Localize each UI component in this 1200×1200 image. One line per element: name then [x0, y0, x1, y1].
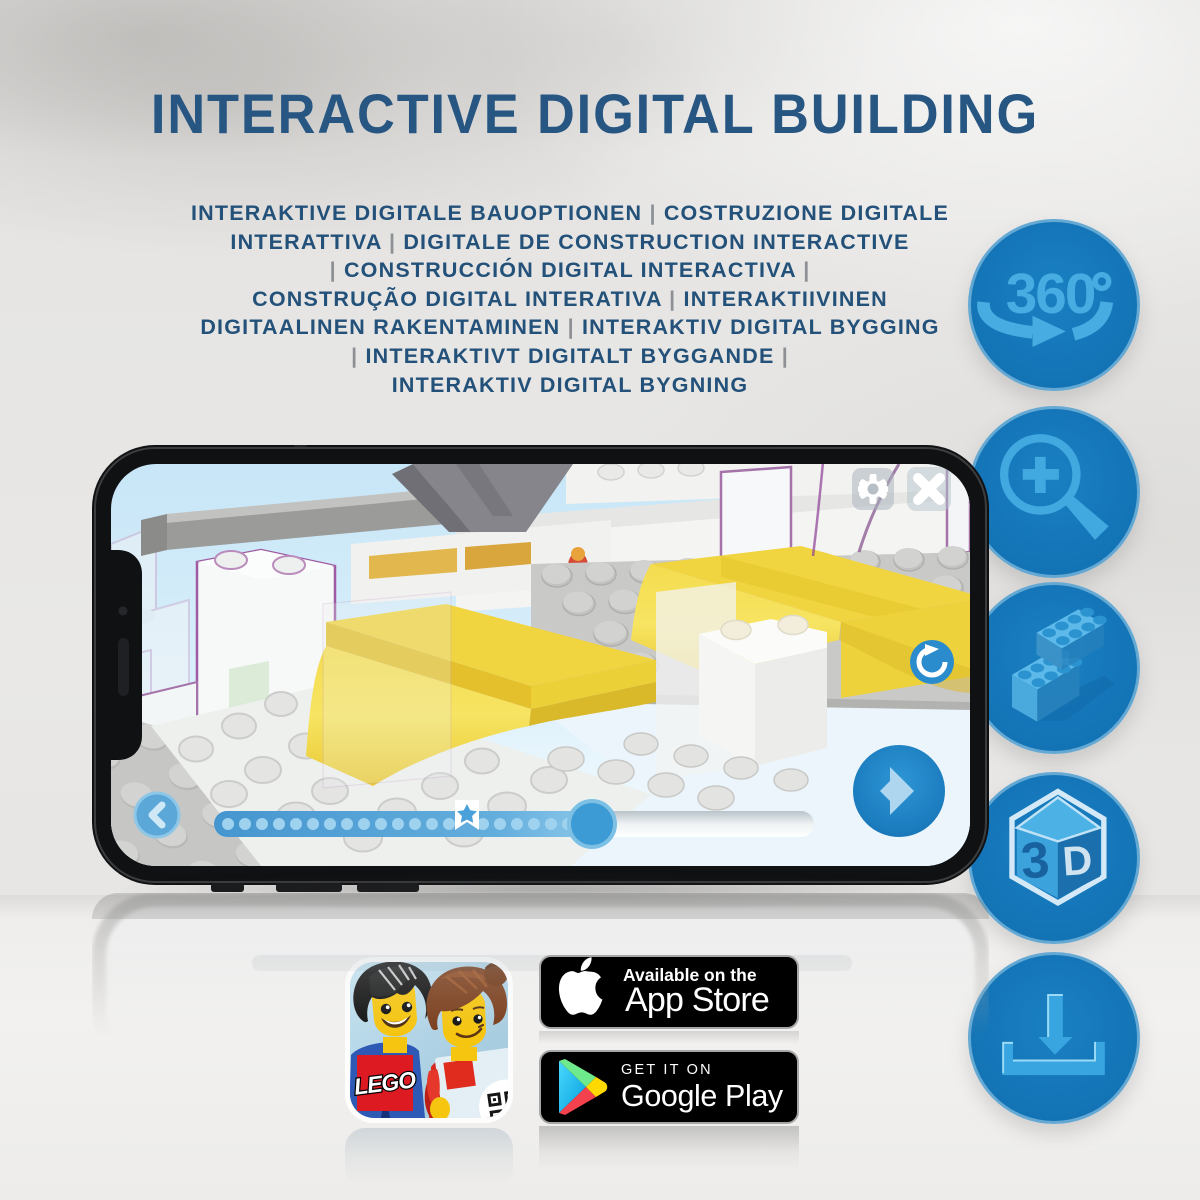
svg-text:GET IT ON: GET IT ON — [621, 1062, 713, 1078]
svg-text:App Store: App Store — [625, 981, 769, 1019]
svg-text:Google Play: Google Play — [621, 1079, 784, 1113]
svg-text:3: 3 — [1019, 831, 1051, 890]
svg-text:D: D — [1061, 837, 1094, 885]
svg-text:360: 360 — [1006, 263, 1095, 326]
